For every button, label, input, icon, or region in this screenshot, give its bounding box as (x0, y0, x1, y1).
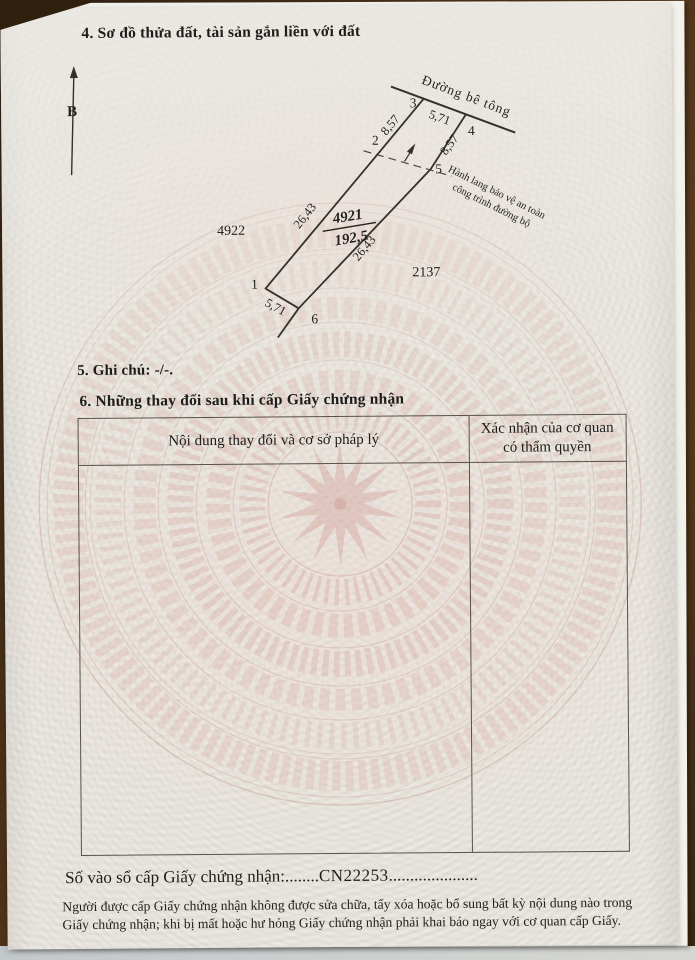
registry-label: Số vào sổ cấp Giấy chứng nhận: (65, 866, 285, 887)
north-arrow-icon (70, 66, 79, 175)
table-header-row: Nội dung thay đổi và cơ sở pháp lý Xác n… (79, 415, 626, 466)
adjacent-parcel-left: 4922 (217, 224, 245, 239)
adjacent-parcel-right: 2137 (412, 265, 440, 280)
changes-table: Nội dung thay đổi và cơ sở pháp lý Xác n… (78, 414, 630, 856)
registry-dots-left: ........ (285, 866, 319, 885)
section6-title: 6. Những thay đổi sau khi cấp Giấy chứng… (79, 390, 404, 411)
parcel-diagram: B Đường bê tông 3 4 2 5 1 6 5,71 8,57 (1, 53, 674, 361)
registry-number-line: Số vào sổ cấp Giấy chứng nhận:........CN… (65, 865, 478, 888)
col-header-change-content: Nội dung thay đổi và cơ sở pháp lý (79, 416, 469, 465)
section5-note: 5. Ghi chú: -/-. (77, 362, 173, 380)
north-label: B (67, 104, 77, 120)
table-column-divider (469, 416, 473, 852)
vertex-5: 5 (435, 161, 442, 176)
dim-top: 5,71 (427, 107, 452, 128)
vertex-1: 1 (251, 277, 258, 292)
col-header-authority-line1: Xác nhận của cơ quan (481, 419, 614, 439)
col-header-authority: Xác nhận của cơ quan có thẩm quyền (469, 415, 626, 462)
vertex-4: 4 (468, 123, 475, 138)
dim-lower-left: 26,43 (291, 200, 319, 231)
vertex-3: 3 (410, 95, 417, 110)
vertex-2: 2 (372, 133, 379, 148)
col-header-authority-line2: có thẩm quyền (503, 438, 591, 458)
footer-warning-line2: Giấy chứng nhận; khi bị mất hoặc hư hỏng… (62, 911, 654, 933)
footer-warning: Người được cấp Giấy chứng nhận không đượ… (62, 894, 654, 934)
parcel-number: 4921 (331, 207, 364, 228)
certificate-page: 4. Sơ đồ thửa đất, tài sản gắn liền với … (0, 3, 678, 949)
access-arrow-icon (404, 143, 415, 161)
registry-number: CN22253 (319, 866, 389, 886)
section4-title: 4. Sơ đồ thửa đất, tài sản gắn liền với … (81, 23, 360, 43)
vertex-6: 6 (311, 311, 318, 326)
registry-dots-right: ..................... (388, 865, 477, 885)
dim-upper-left: 8,57 (378, 112, 403, 138)
